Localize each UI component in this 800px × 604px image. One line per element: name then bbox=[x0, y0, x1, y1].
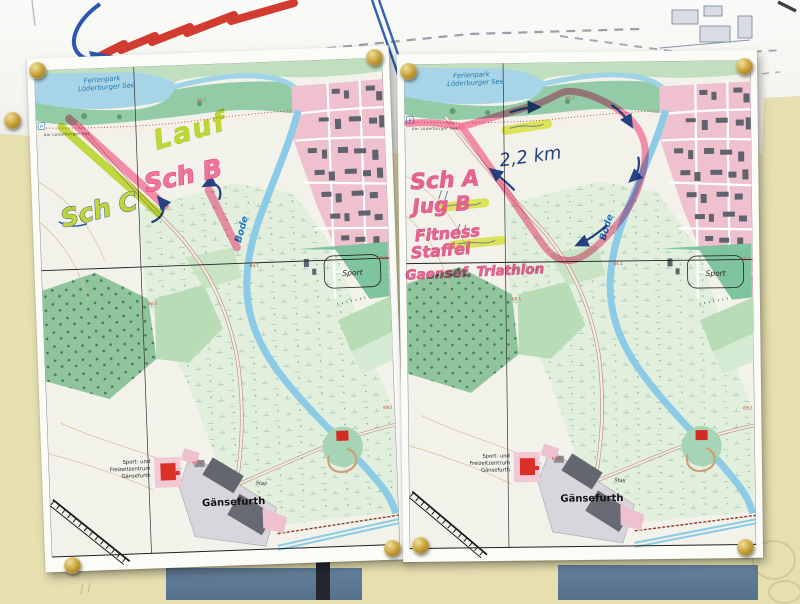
thumbtack bbox=[384, 540, 401, 557]
fold-line bbox=[32, 0, 35, 26]
right-map: 2,2 km Sch A Jug B Fitness Staffel Gaens… bbox=[397, 50, 763, 562]
thumbtack bbox=[737, 539, 754, 556]
wall-panel-right bbox=[558, 565, 758, 600]
map-sheet-left: Lauf Sch B Sch C bbox=[27, 46, 408, 573]
thumbtack bbox=[736, 58, 753, 75]
wall-scuff-mark: / / bbox=[79, 581, 92, 595]
thumbtack bbox=[64, 557, 81, 574]
thumbtack-on-wall bbox=[4, 112, 21, 129]
photo-of-pinned-maps: / / bbox=[0, 0, 800, 600]
wall-swirl-mark bbox=[768, 580, 800, 604]
wall-panel-left bbox=[166, 568, 362, 600]
thumbtack bbox=[366, 49, 383, 66]
handwritten-jug-b: Jug B bbox=[408, 191, 472, 219]
left-map: Lauf Sch B Sch C bbox=[27, 46, 408, 573]
thumbtack bbox=[29, 62, 46, 79]
building-plan-sketch bbox=[660, 6, 752, 48]
corner-pen-mark bbox=[778, 2, 796, 11]
panel-shadow-strip bbox=[316, 561, 330, 600]
thumbtack bbox=[400, 63, 417, 80]
thumbtack bbox=[412, 537, 429, 554]
map-sheet-right: 2,2 km Sch A Jug B Fitness Staffel Gaens… bbox=[397, 50, 763, 562]
